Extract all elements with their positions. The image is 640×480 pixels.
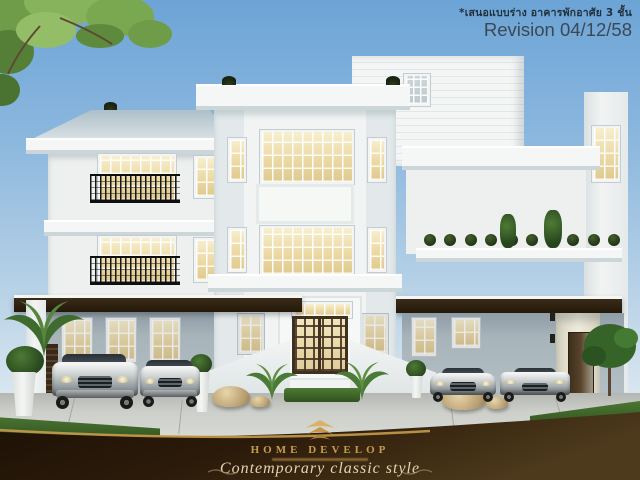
revision-label: Revision 04/12/58: [484, 19, 632, 41]
brand-tagline: Contemporary classic style: [0, 460, 640, 478]
brand-name: HOME DEVELOP: [0, 444, 640, 456]
topiary-ball: [526, 234, 538, 246]
sports-car-lamborghini: [500, 368, 570, 402]
tower-spandrel-panel: [256, 184, 354, 224]
wall-sconce: [550, 334, 555, 343]
tower-window-2f: [260, 226, 354, 276]
tagline-flourish-right: [402, 468, 432, 476]
parapet-finial: [386, 76, 400, 85]
right-carport-canopy: [396, 296, 622, 313]
palm-tree-left: [4, 296, 84, 362]
tower-cornice: [208, 274, 402, 292]
tagline-flourish-left: [208, 468, 238, 476]
topiary-ball: [444, 234, 456, 246]
topiary-ball: [567, 234, 579, 246]
door-center-stile: [318, 316, 321, 374]
sports-car-amg: [430, 368, 496, 402]
architectural-rendering-scene: *เสนอแบบร่าง อาคารพักอาศัย 3 ชั้น Revisi…: [0, 0, 640, 480]
topiary-ball: [465, 234, 477, 246]
topiary-ball: [588, 234, 600, 246]
terrace-plant: [500, 214, 516, 248]
entrance-flank-window: [238, 314, 264, 354]
suv-range-rover: [140, 360, 200, 408]
terrace-plant: [544, 210, 562, 248]
palm-plant: [334, 360, 390, 402]
juliet-balcony-3f: [90, 174, 180, 203]
planter-shrub: [406, 360, 426, 378]
roof-finial: [104, 102, 117, 110]
topiary-ball: [424, 234, 436, 246]
tower-side-window: [368, 138, 386, 182]
tower-side-window: [228, 138, 246, 182]
left-wing-eave: [26, 138, 238, 154]
right-wing-parapet: [402, 146, 600, 170]
wall-sconce: [550, 312, 555, 321]
juliet-balcony-2f: [90, 256, 180, 285]
parapet-finial: [222, 76, 236, 85]
topiary-ball: [608, 234, 620, 246]
tower-window-3f: [260, 130, 354, 184]
left-wing-narrow-window-3f: [194, 156, 216, 198]
right-ground-window: [452, 318, 480, 348]
left-ground-window: [150, 318, 180, 362]
tower-parapet: [196, 84, 410, 110]
tower-side-window: [368, 228, 386, 272]
tower-side-window: [228, 228, 246, 272]
home-develop-logo-icon: [302, 420, 338, 444]
garden-tree-right: [580, 316, 640, 398]
left-wing-cornice: [44, 220, 230, 236]
topiary-ball: [485, 234, 497, 246]
right-ground-window: [412, 318, 436, 356]
suv-mercedes: [52, 354, 138, 408]
terrace-ledge: [416, 248, 622, 262]
